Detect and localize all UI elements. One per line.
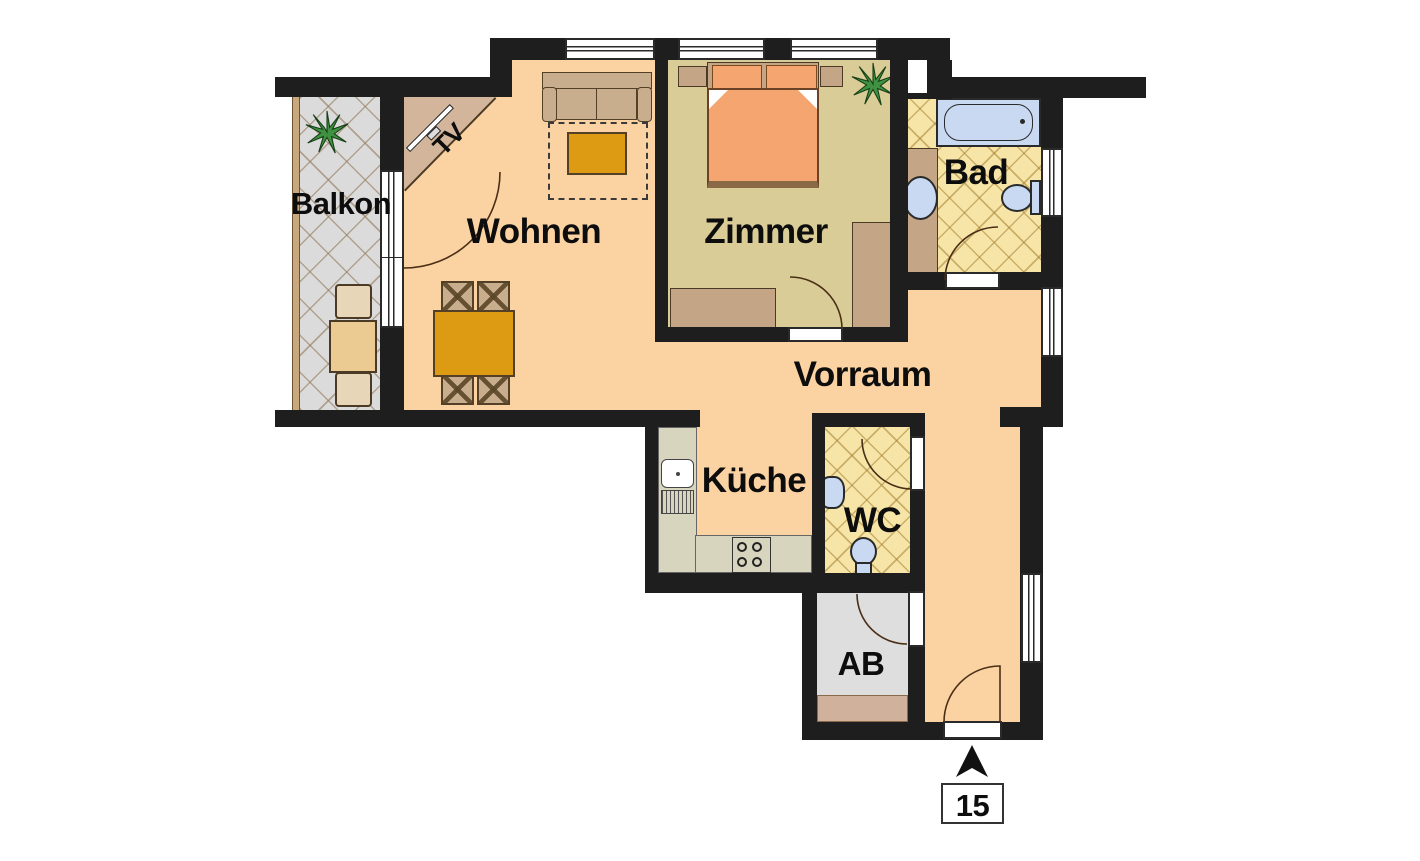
stove [732,537,771,573]
dresser [852,222,891,331]
wall [645,427,658,593]
window [790,38,878,60]
room-label-wc: WC [800,501,945,541]
room-label-bad: Bad [921,153,1031,193]
wall [927,77,1146,98]
dining-chair [441,374,474,405]
dining-chair [477,281,510,312]
burner [752,557,762,567]
bathtub [936,98,1041,147]
burner [737,557,747,567]
window [1041,287,1063,357]
sofa-cushion [556,88,597,120]
room-label-zimmer: Zimmer [680,212,852,252]
wall [380,97,404,172]
sofa-cushion [596,88,637,120]
bathtub-drain [1020,119,1025,124]
wall [275,77,512,97]
balcony-railing [292,97,300,410]
door-wc [910,436,925,491]
window [1041,148,1063,217]
sofa-armrest [637,87,652,122]
room-label-ab: AB [800,645,922,683]
wall [645,573,925,593]
wall [812,413,925,427]
pillow [766,65,817,89]
wall [890,60,908,342]
sofa-armrest [542,87,557,122]
wall [802,722,925,740]
wall [380,325,404,412]
toilet-tank [1030,180,1041,215]
wall [655,60,668,342]
coffee-table [567,132,627,175]
ab-cabinet [817,695,908,722]
door-entrance [943,721,1002,739]
door-bad [945,272,1000,289]
nightstand [820,66,843,87]
window [565,38,655,60]
door-zimmer [788,327,843,342]
unit-number-box: 15 [941,783,1004,824]
burner [737,542,747,552]
unit-number: 15 [943,788,1002,824]
balcony-chair [335,372,372,407]
dining-chair [477,374,510,405]
plant-icon [305,110,349,154]
wardrobe [670,288,776,328]
window [678,38,765,60]
pillow [712,65,762,89]
double-bed [707,88,819,188]
burner [752,542,762,552]
floor-plan: Balkon Wohnen Zimmer Bad Vorraum Küche W… [0,0,1420,861]
room-label-wohnen: Wohnen [449,212,619,252]
door-ab [908,591,925,647]
balcony-door-divider [382,257,402,259]
room-label-balkon: Balkon [270,186,412,222]
dining-chair [441,281,474,312]
window [1021,573,1042,663]
plant-icon [851,62,895,106]
wall [655,327,908,342]
balcony-chair [335,284,372,319]
sofa-back [542,72,652,89]
room-label-kueche: Küche [670,461,838,501]
wall [275,410,700,427]
entrance-arrow-icon [956,745,988,777]
nightstand [678,66,707,87]
wall [1041,98,1063,407]
wall [1000,407,1063,427]
dining-table [433,310,515,377]
balcony-table [329,320,377,373]
corridor-floor [925,427,1020,723]
room-label-vorraum: Vorraum [775,355,950,395]
